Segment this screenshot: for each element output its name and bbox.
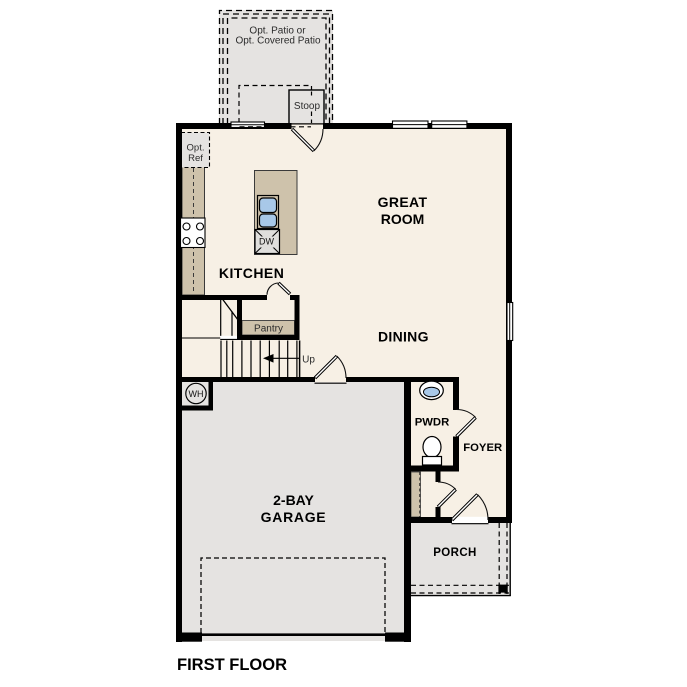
svg-text:ROOM: ROOM: [381, 211, 425, 227]
svg-text:2-BAY: 2-BAY: [273, 492, 314, 508]
svg-text:FOYER: FOYER: [463, 442, 502, 454]
svg-text:KITCHEN: KITCHEN: [219, 265, 284, 281]
svg-text:Pantry: Pantry: [254, 324, 283, 335]
svg-text:GARAGE: GARAGE: [261, 509, 327, 525]
svg-text:DINING: DINING: [378, 329, 429, 345]
svg-text:Opt. Covered Patio: Opt. Covered Patio: [235, 36, 320, 47]
svg-text:PWDR: PWDR: [415, 417, 450, 429]
svg-text:DW: DW: [259, 237, 274, 247]
svg-text:Ref: Ref: [188, 153, 203, 164]
svg-text:FIRST FLOOR: FIRST FLOOR: [177, 656, 287, 674]
svg-text:WH: WH: [189, 389, 204, 399]
svg-text:Stoop: Stoop: [294, 101, 321, 112]
svg-text:GREAT: GREAT: [378, 194, 428, 210]
svg-text:Opt.: Opt.: [187, 143, 205, 154]
svg-text:Up: Up: [302, 355, 315, 366]
svg-text:PORCH: PORCH: [433, 547, 477, 559]
